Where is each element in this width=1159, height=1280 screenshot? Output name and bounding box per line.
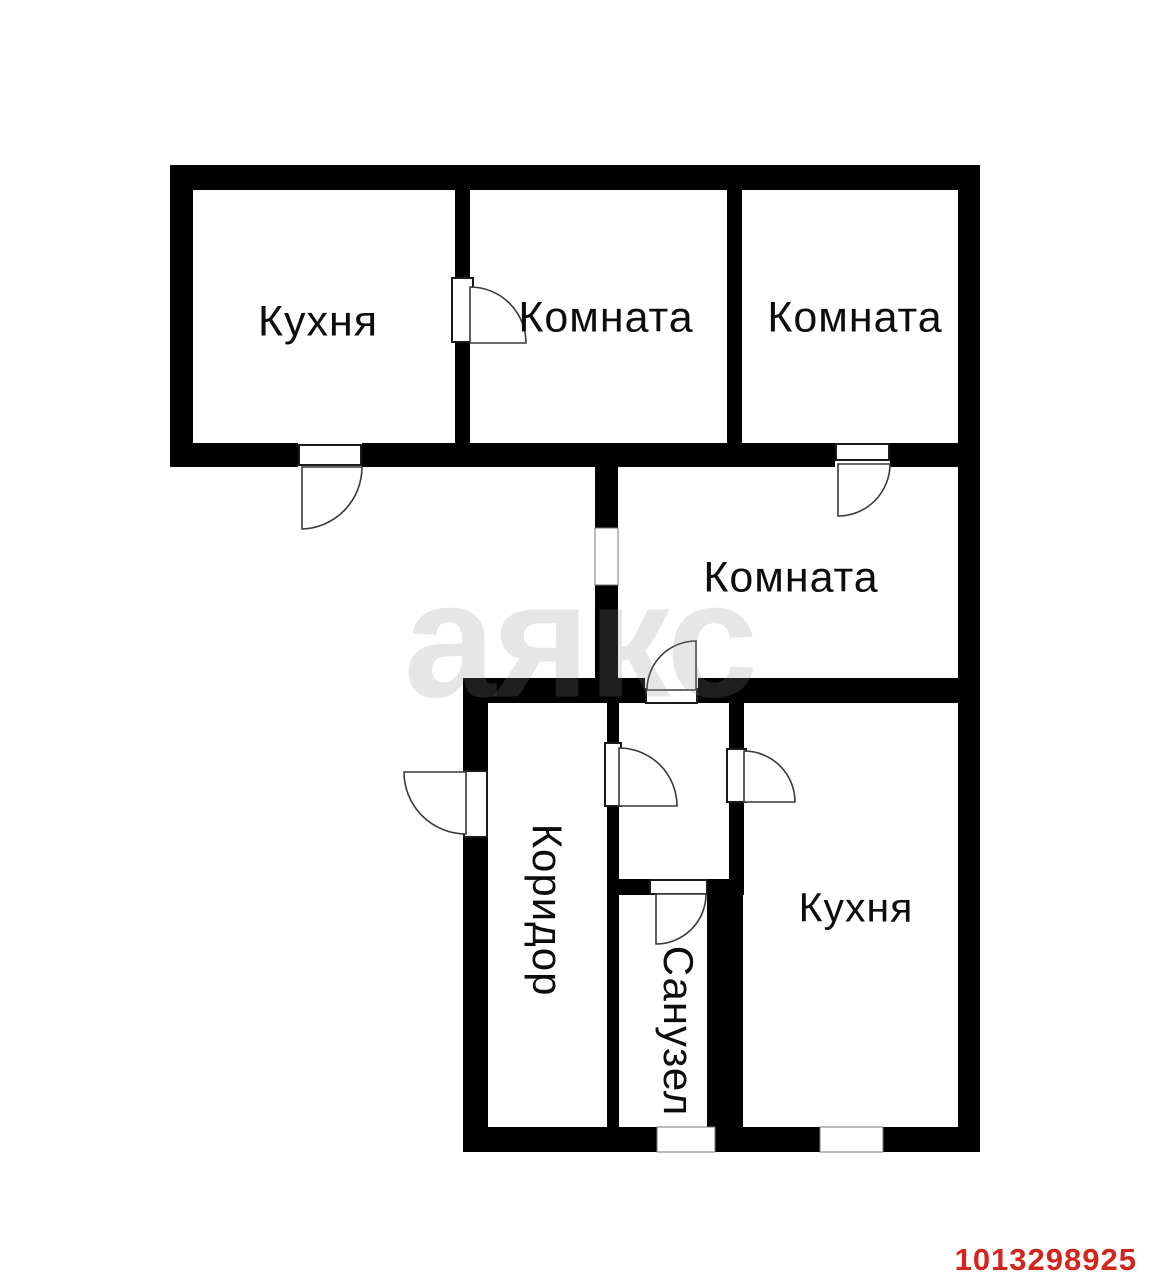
sill-top-right-room (836, 444, 889, 460)
sill-vestibule-kitchen (727, 749, 746, 802)
door-arc-top-right-room (838, 464, 890, 516)
wall-bathroom-kitchen (707, 895, 743, 1127)
label-kitchen-top: Кухня (258, 298, 378, 347)
door-arc-middle-room (647, 641, 696, 690)
wall-bottom-exterior (463, 1127, 980, 1152)
wall-left-lower-exterior (463, 678, 488, 1152)
floorplan-page: Кухня Комната Комната Комната Кухня Кори… (0, 0, 1159, 1280)
wall-lower-section-top (463, 678, 958, 703)
label-room-middle: Комната (703, 554, 878, 603)
label-kitchen-bottom: Кухня (799, 885, 914, 932)
wall-left-exterior (170, 165, 193, 467)
window-kitchen-bottom (820, 1127, 883, 1152)
door-arc-vestibule-kitchen (744, 751, 795, 802)
wall-right-exterior (958, 165, 980, 1152)
window-middle-wall (595, 528, 618, 585)
sill-entrance-top (299, 445, 361, 465)
wall-top-exterior (170, 165, 980, 190)
wall-room-room-divider (727, 190, 742, 443)
label-bathroom: Санузел (654, 946, 702, 1117)
sill-middle-room (646, 689, 697, 703)
window-bathroom-bottom (657, 1127, 715, 1152)
door-arc-corridor-vestibule (619, 748, 677, 806)
door-arc-entrance-top (302, 467, 362, 529)
label-room-top-right: Комната (767, 294, 942, 343)
listing-id: 1013298925 (955, 1242, 1137, 1278)
door-arc-corridor-entrance (404, 772, 466, 834)
sill-corridor-entrance (464, 771, 487, 837)
floorplan-drawing (0, 0, 1159, 1280)
sill-bathroom (650, 880, 707, 894)
door-arc-bathroom (656, 894, 706, 944)
label-room-top-middle: Комната (518, 294, 693, 343)
label-corridor: Коридор (523, 824, 571, 997)
